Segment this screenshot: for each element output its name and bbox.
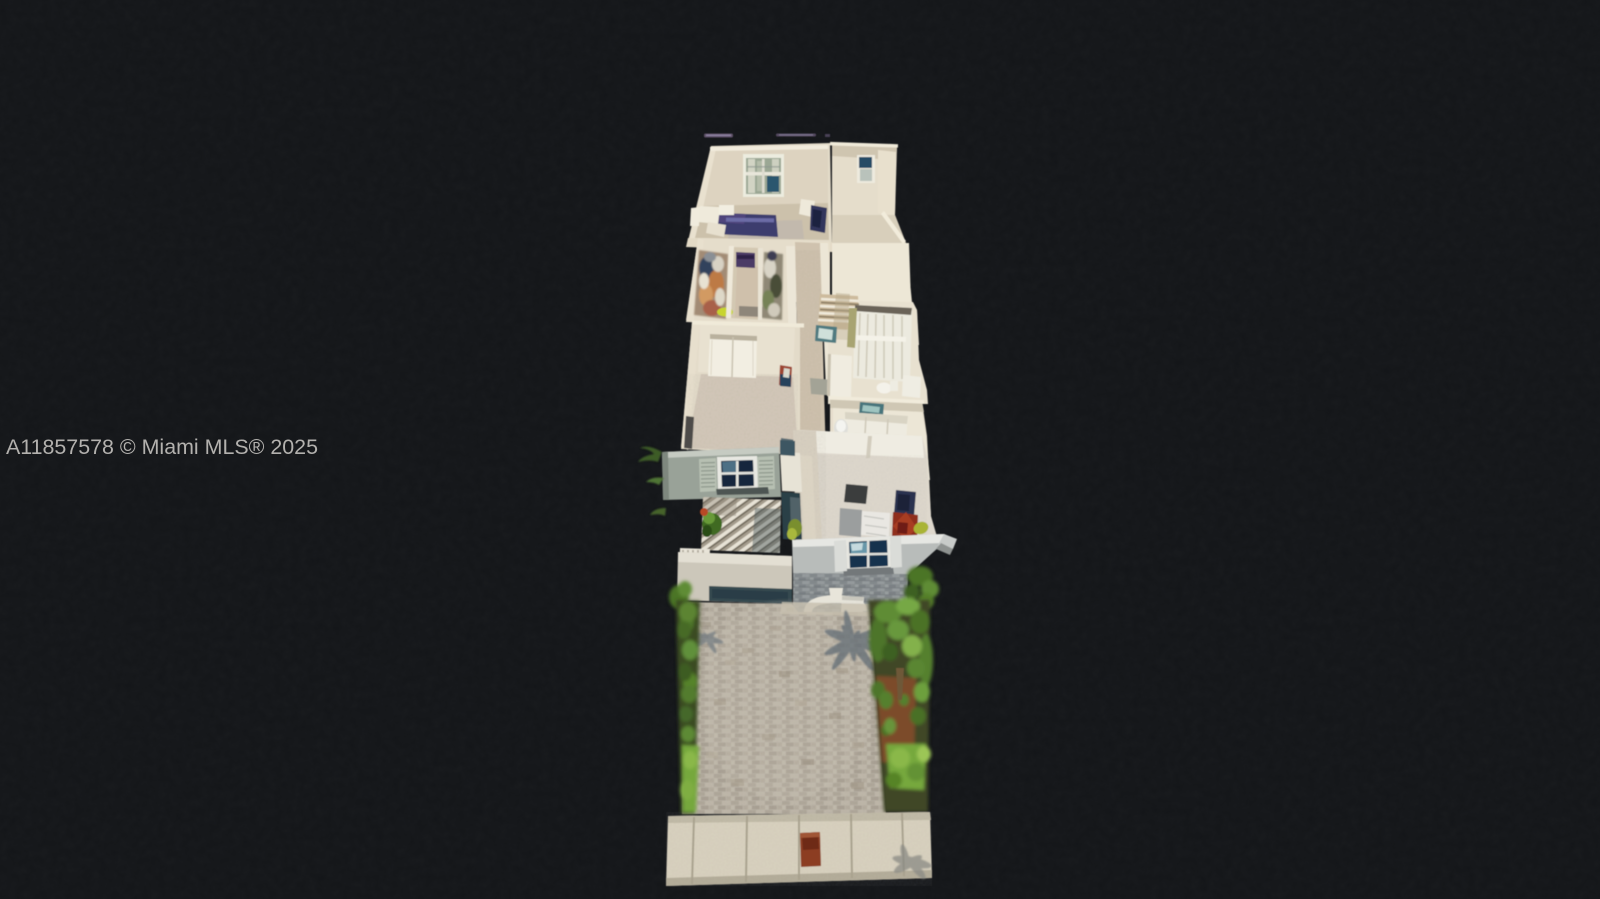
svg-text:A11857578 © Miami MLS® 2025: A11857578 © Miami MLS® 2025 — [6, 435, 318, 459]
